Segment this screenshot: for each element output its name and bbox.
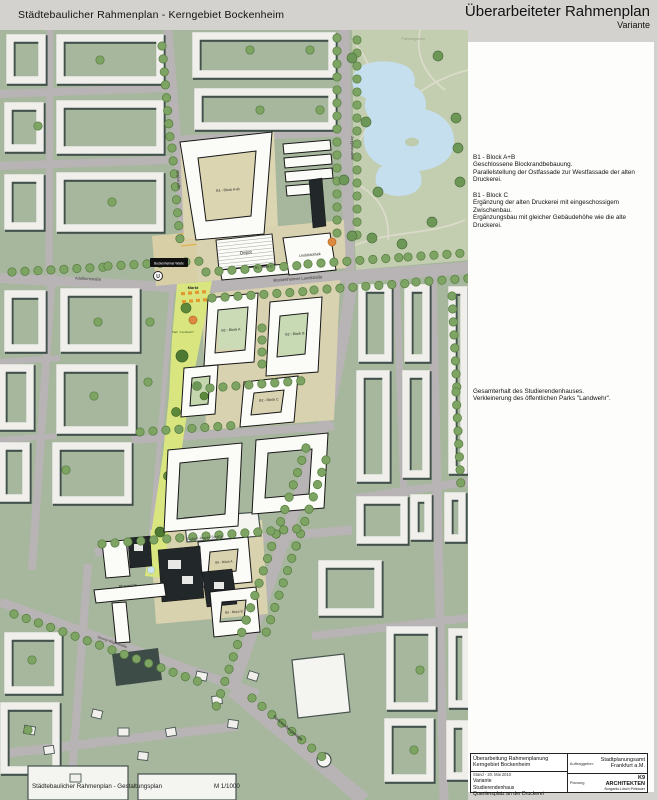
planner-label: Planung	[570, 780, 598, 785]
annotation-title: B1 - Block A+B	[473, 154, 651, 161]
variant-line: Quartiersplatz an der Druckerei	[473, 791, 565, 797]
planner-row: Planung K9 ARCHITEKTEN Borgards.Lösch.Pi…	[568, 773, 647, 793]
plan-sheet: Städtebaulicher Rahmenplan - Kerngebiet …	[0, 0, 658, 800]
title-block-parties: Auftraggeber: Stadtplanungsamt Frankfurt…	[568, 754, 647, 792]
annotation-line: Geschlossene Blockrandbebauung.	[473, 161, 651, 168]
project-line1: Überarbeitung Rahmenplanung	[473, 756, 565, 763]
annotation-line: Verkleinerung des öffentlichen Parks "La…	[473, 395, 651, 402]
warte-station-label: Bockenheimer Warte	[154, 262, 184, 266]
park-label-palmengarten: Palmengarten	[401, 37, 425, 41]
annotation-title: B1 - Block C	[473, 192, 651, 199]
master-plan-map: Bockenheimer Warte U Bockenheimer Landst…	[0, 30, 468, 800]
sheet-title-main: Überarbeiteter Rahmenplan	[465, 4, 650, 20]
sheet-title-variant: Variante	[465, 20, 650, 30]
client-city: Frankfurt a.M.	[598, 763, 645, 769]
park-label-landwehr: Park "Landwehr"	[172, 330, 194, 334]
street-label-zeppelinallee: Zeppelinallee	[350, 136, 355, 161]
planner-sub: Borgards.Lösch.Piribauer	[598, 787, 645, 791]
project-line2: Kerngebiet Bockenheim	[473, 762, 565, 769]
annotation-b1-block-c: B1 - Block C Ergänzung der alten Drucker…	[473, 192, 651, 229]
sheet-title-right: Überarbeiteter Rahmenplan Variante	[465, 4, 650, 30]
map-footer-scale: M 1/1000	[214, 783, 240, 790]
palmengarten-park	[350, 30, 468, 270]
annotation-park: Gesamterhalt des Studierendenhauses. Ver…	[473, 388, 651, 403]
client-label: Auftraggeber:	[570, 761, 598, 766]
annotation-sidebar: B1 - Block A+B Geschlossene Blockrandbeb…	[468, 42, 654, 792]
orange-tree	[189, 316, 197, 324]
plan-date: Stand - 20. Mai 2010	[473, 773, 565, 778]
large-hall-building	[292, 654, 350, 718]
map-footer-caption: Städtebaulicher Rahmenplan - Gestaltungs…	[32, 783, 163, 790]
planner-name: K9 ARCHITEKTEN	[598, 775, 645, 787]
orange-tree	[328, 238, 336, 246]
poi-label-markt: Markt	[188, 285, 199, 290]
client-row: Auftraggeber: Stadtplanungsamt Frankfurt…	[568, 754, 647, 773]
title-block-project: Überarbeitung Rahmenplanung Kerngebiet B…	[471, 754, 568, 792]
annotation-line: Ergänzungsbau mit gleicher Gebäudehöhe w…	[473, 214, 651, 229]
annotation-line: Parallelstellung der Ostfassade zur West…	[473, 169, 651, 184]
ubahn-letter: U	[156, 274, 160, 280]
annotation-b1-block-ab: B1 - Block A+B Geschlossene Blockrandbeb…	[473, 154, 651, 184]
annotation-line: Gesamterhalt des Studierendenhauses.	[473, 388, 651, 395]
water-basin	[148, 567, 155, 574]
sheet-title-left: Städtebaulicher Rahmenplan - Kerngebiet …	[18, 9, 284, 21]
dark-roof-building	[112, 648, 162, 686]
title-block: Überarbeitung Rahmenplanung Kerngebiet B…	[470, 753, 648, 793]
annotation-line: Ergänzung der alten Druckerei mit einges…	[473, 199, 651, 214]
